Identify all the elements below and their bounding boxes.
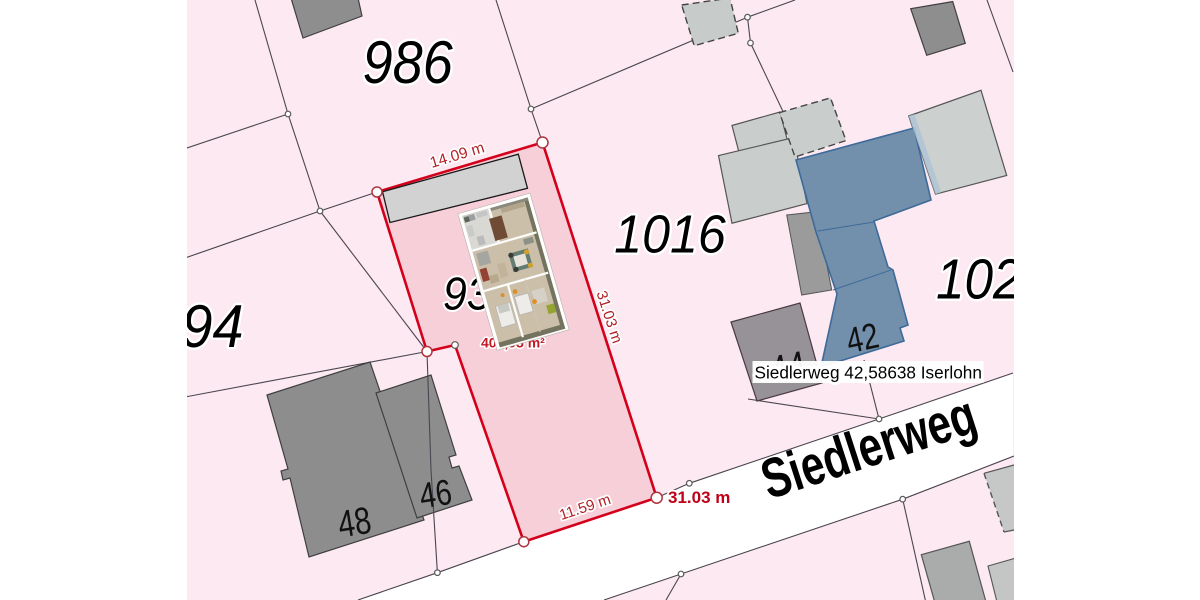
svg-text:986: 986 — [363, 29, 453, 96]
svg-text:Siedlerweg 42,58638 Iserlohn: Siedlerweg 42,58638 Iserlohn — [755, 363, 982, 383]
svg-text:1028: 1028 — [936, 248, 1050, 311]
svg-text:1016: 1016 — [614, 205, 726, 265]
svg-text:46: 46 — [417, 471, 455, 516]
svg-text:94: 94 — [181, 294, 243, 360]
svg-text:31.03 m: 31.03 m — [668, 488, 730, 507]
svg-text:48: 48 — [335, 499, 374, 546]
